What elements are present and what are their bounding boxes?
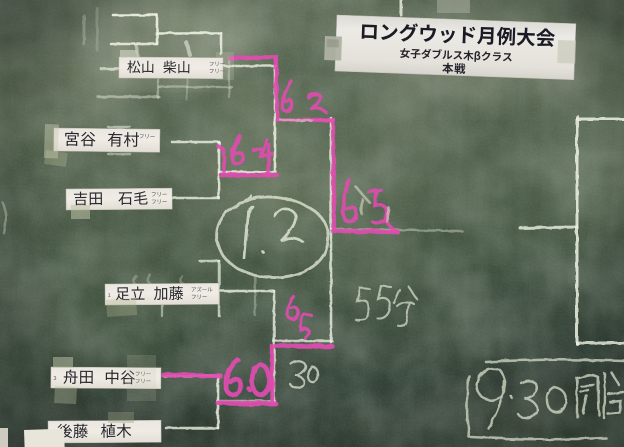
svg-text:3: 3 [53,376,56,382]
svg-text:1: 1 [108,293,111,299]
